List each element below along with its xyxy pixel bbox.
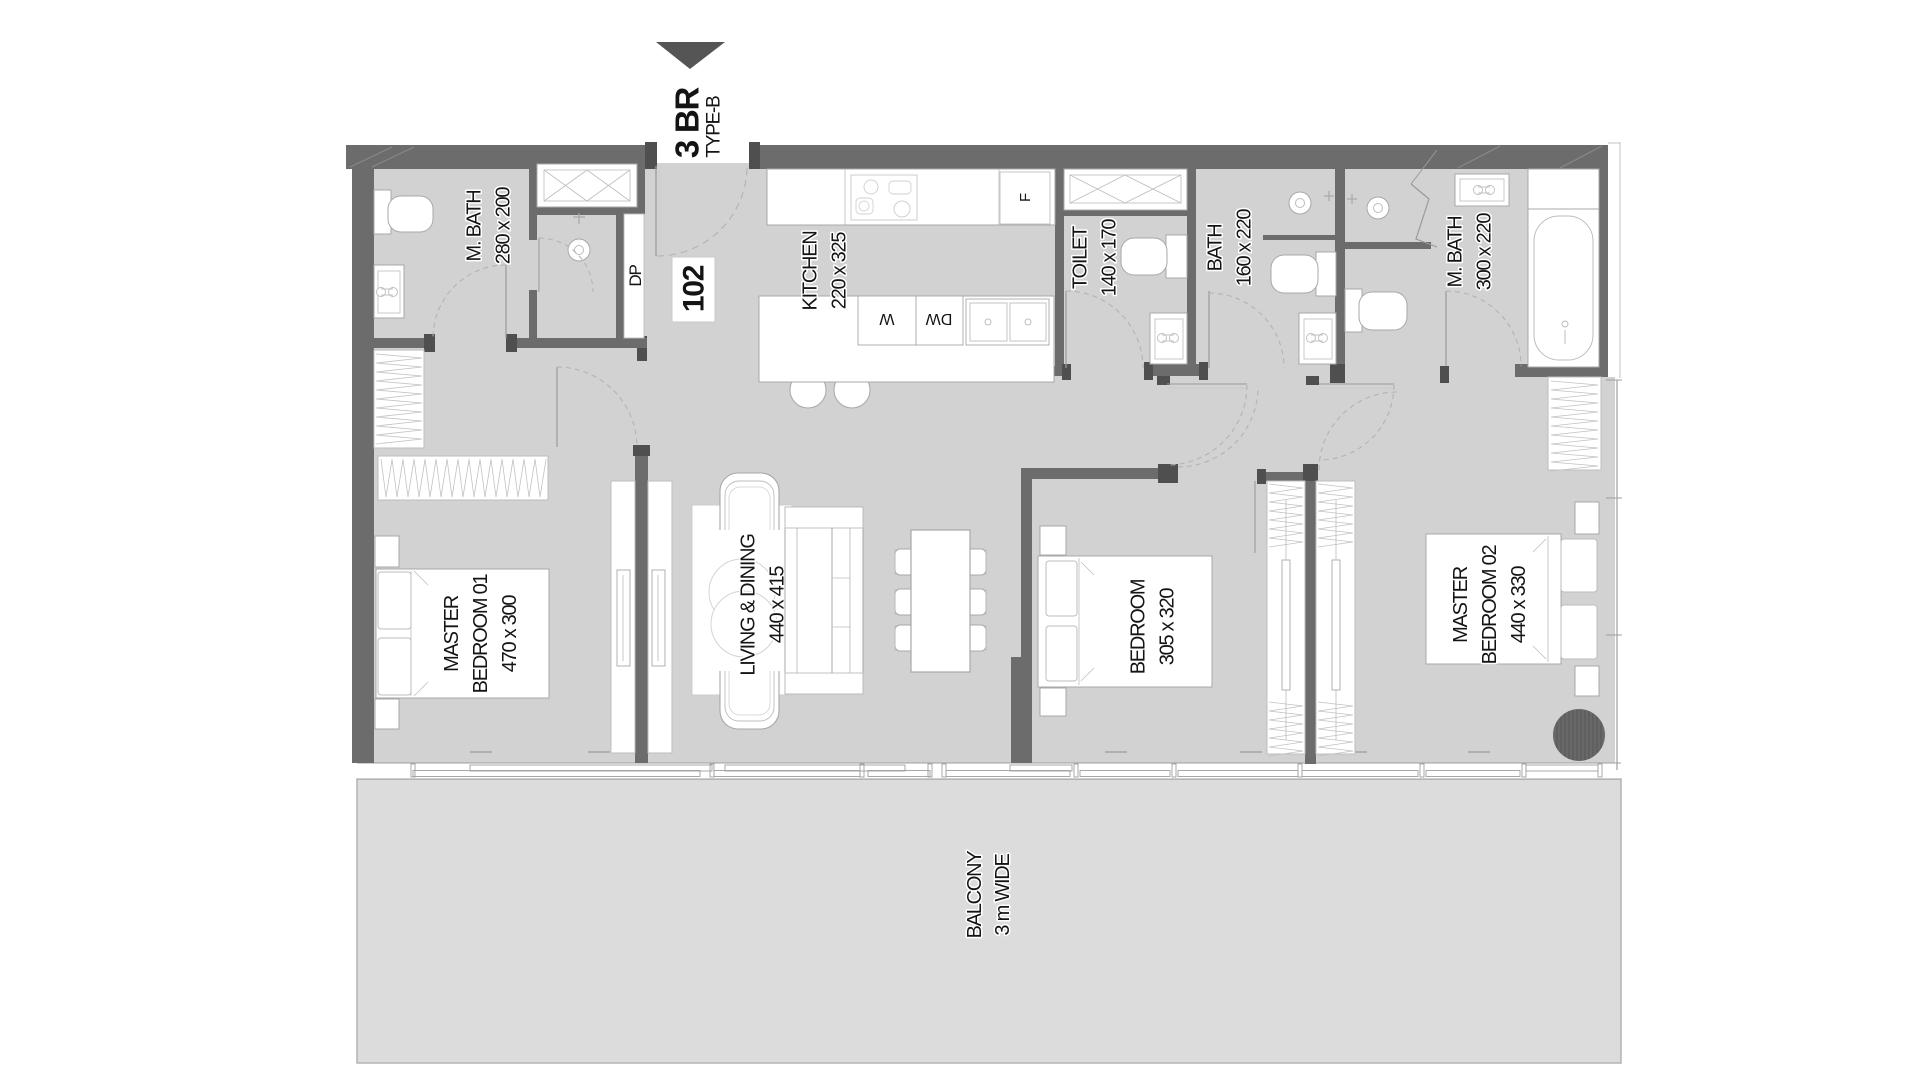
svg-text:280 x 200: 280 x 200 bbox=[493, 187, 515, 265]
svg-text:160 x 220: 160 x 220 bbox=[1234, 209, 1256, 287]
svg-text:TYPE-B: TYPE-B bbox=[704, 96, 725, 158]
svg-text:DP: DP bbox=[626, 265, 645, 287]
svg-text:BEDROOM 01: BEDROOM 01 bbox=[470, 574, 492, 694]
svg-text:BATH: BATH bbox=[1205, 225, 1227, 272]
svg-text:102: 102 bbox=[678, 265, 711, 312]
svg-text:M. BATH: M. BATH bbox=[1445, 217, 1467, 288]
svg-text:440 x 330: 440 x 330 bbox=[1508, 566, 1530, 644]
svg-text:M. BATH: M. BATH bbox=[464, 191, 486, 262]
svg-text:MASTER: MASTER bbox=[441, 595, 463, 672]
svg-text:BEDROOM 02: BEDROOM 02 bbox=[1479, 545, 1501, 665]
svg-text:3 m WIDE: 3 m WIDE bbox=[992, 854, 1014, 936]
svg-text:W: W bbox=[879, 310, 895, 327]
svg-text:MASTER: MASTER bbox=[1450, 566, 1472, 643]
svg-text:TOILET: TOILET bbox=[1070, 226, 1092, 289]
svg-text:BALCONY: BALCONY bbox=[964, 851, 986, 939]
svg-text:LIVING & DINING: LIVING & DINING bbox=[738, 534, 760, 676]
svg-text:BEDROOM: BEDROOM bbox=[1128, 579, 1150, 674]
svg-text:140 x 170: 140 x 170 bbox=[1099, 219, 1121, 297]
svg-text:470 x 300: 470 x 300 bbox=[499, 595, 521, 673]
svg-text:220 x 325: 220 x 325 bbox=[829, 232, 851, 310]
svg-text:KITCHEN: KITCHEN bbox=[800, 231, 822, 310]
svg-text:305 x 320: 305 x 320 bbox=[1157, 588, 1179, 666]
svg-text:300 x 220: 300 x 220 bbox=[1474, 213, 1496, 291]
svg-text:3 BR: 3 BR bbox=[669, 86, 706, 158]
svg-text:F: F bbox=[1017, 193, 1034, 202]
svg-text:DW: DW bbox=[925, 310, 953, 327]
